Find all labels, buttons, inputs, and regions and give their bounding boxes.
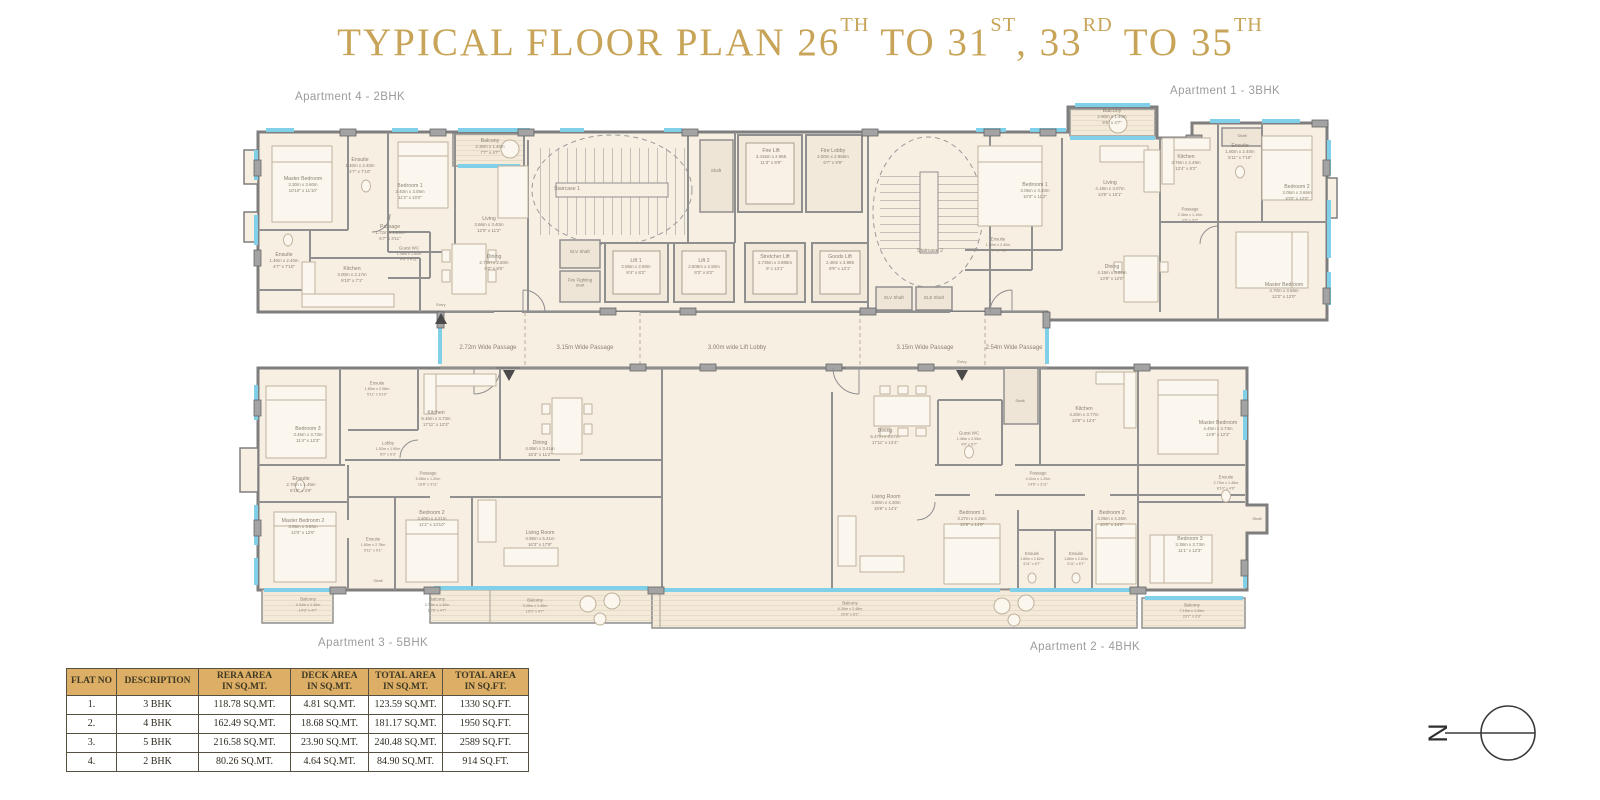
apartment-label: Apartment 3 - 5BHK [318,637,428,649]
area-table-header-cell: TOTAL AREA IN SQ.FT. [443,669,529,696]
table-row: 3.5 BHK216.58 SQ.MT.23.90 SQ.MT.240.48 S… [67,733,529,752]
table-cell: 1950 SQ.FT. [443,714,529,733]
table-cell: 2589 SQ.FT. [443,733,529,752]
table-cell: 2. [67,714,117,733]
room-label: Entry [436,302,445,307]
table-row: 2.4 BHK162.49 SQ.MT.18.68 SQ.MT.181.17 S… [67,714,529,733]
room-label: Living Room4.95m x 5.41m16'3" x 17'9" [525,530,554,547]
room-label: Master Bedroom3.30m x 3.60m10'10" x 11'1… [284,176,322,193]
table-cell: 3. [67,733,117,752]
room-label: Shaft [711,168,722,173]
room-label: Bedroom 33.38m x 3.73m11'1" x 12'3" [1175,536,1204,553]
table-cell: 123.59 SQ.MT. [369,695,443,714]
room-label: Shaft [1237,133,1247,138]
room-label: Goods Lift2.48m x 3.9858'9" x 13'1" [826,254,854,271]
room-label: 3.00m wide Lift Lobby [708,345,766,351]
table-cell: 118.78 SQ.MT. [199,695,291,714]
room-label: Bedroom 13.40m x 3.05m11'2" x 10'0" [395,183,424,200]
room-label: ELE Shaft [924,295,945,300]
room-label: Guest WC1.46m x 1.50m4'9" x 4'11" [397,246,422,262]
table-cell: 4 BHK [117,714,199,733]
table-cell: 5 BHK [117,733,199,752]
room-label: Bedroom 33.45m x 3.73m11'4" x 12'3" [293,426,322,443]
table-cell: 84.90 SQ.MT. [369,752,443,771]
table-row: 4.2 BHK80.26 SQ.MT.4.64 SQ.MT.84.90 SQ.M… [67,752,529,771]
table-cell: 3 BHK [117,695,199,714]
area-table-header-cell: DECK AREA IN SQ.MT. [291,669,369,696]
area-table-head: FLAT NODESCRIPTIONRERA AREA IN SQ.MT.DEC… [67,669,529,696]
table-cell: 1. [67,695,117,714]
apartment-label: Apartment 1 - 3BHK [1170,85,1280,97]
room-label: Bedroom 23.05m x 4.26m10'0" x 14'0" [1097,510,1126,527]
area-table-header-cell: FLAT NO [67,669,117,696]
area-table-header-cell: TOTAL AREA IN SQ.MT. [369,669,443,696]
table-cell: 1330 SQ.FT. [443,695,529,714]
room-label: 3.15m Wide Passage [556,345,614,351]
table-cell: 2 BHK [117,752,199,771]
room-label: ELV Shaft [884,295,904,300]
north-compass: N [1420,680,1550,770]
room-label: Staircase 1 [554,186,580,192]
table-cell: 240.48 SQ.MT. [369,733,443,752]
table-cell: 4.64 SQ.MT. [291,752,369,771]
room-label: 3.15m Wide Passage [896,345,954,351]
room-label: Staircase 2 [917,248,943,254]
table-cell: 162.49 SQ.MT. [199,714,291,733]
room-label: Shaft [1252,516,1262,521]
room-label: Bedroom 13.27m x 4.26m10'9" x 14'0" [957,510,986,527]
room-label: Shaft [1015,398,1025,403]
room-label: 2.54m Wide Passage [985,345,1043,351]
table-cell: 181.17 SQ.MT. [369,714,443,733]
area-table-body: 1.3 BHK118.78 SQ.MT.4.81 SQ.MT.123.59 SQ… [67,695,529,771]
area-table-header-cell: RERA AREA IN SQ.MT. [199,669,291,696]
table-cell: 18.68 SQ.MT. [291,714,369,733]
area-table: FLAT NODESCRIPTIONRERA AREA IN SQ.MT.DEC… [66,668,529,772]
table-cell: 4.81 SQ.MT. [291,695,369,714]
table-cell: 914 SQ.FT. [443,752,529,771]
room-label: ELV Shaft [570,249,590,254]
area-table-grid: FLAT NODESCRIPTIONRERA AREA IN SQ.MT.DEC… [66,668,529,772]
room-label: 2.72m Wide Passage [459,345,517,351]
table-cell: 80.26 SQ.MT. [199,752,291,771]
room-label: Bedroom 13.05m x 3.40m10'0" x 11'2" [1020,182,1049,199]
area-table-header-cell: DESCRIPTION [117,669,199,696]
apartment-label: Apartment 4 - 2BHK [295,91,405,103]
table-cell: 23.90 SQ.MT. [291,733,369,752]
room-label: Living Room4.80m x 4.30m15'9" x 14'1" [871,494,900,511]
table-cell: 4. [67,752,117,771]
room-label: Bedroom 23.40m x 4.21m11'2" x 13'10" [417,510,446,527]
compass-north-label: N [1423,723,1453,743]
room-label: Bedroom 23.05m x 3.66m10'0" x 12'0" [1282,184,1311,201]
table-row: 1.3 BHK118.78 SQ.MT.4.81 SQ.MT.123.59 SQ… [67,695,529,714]
table-cell: 216.58 SQ.MT. [199,733,291,752]
apartment-label: Apartment 2 - 4BHK [1030,641,1140,653]
room-label: Entry [957,359,966,364]
room-label: Shaft [373,578,383,583]
